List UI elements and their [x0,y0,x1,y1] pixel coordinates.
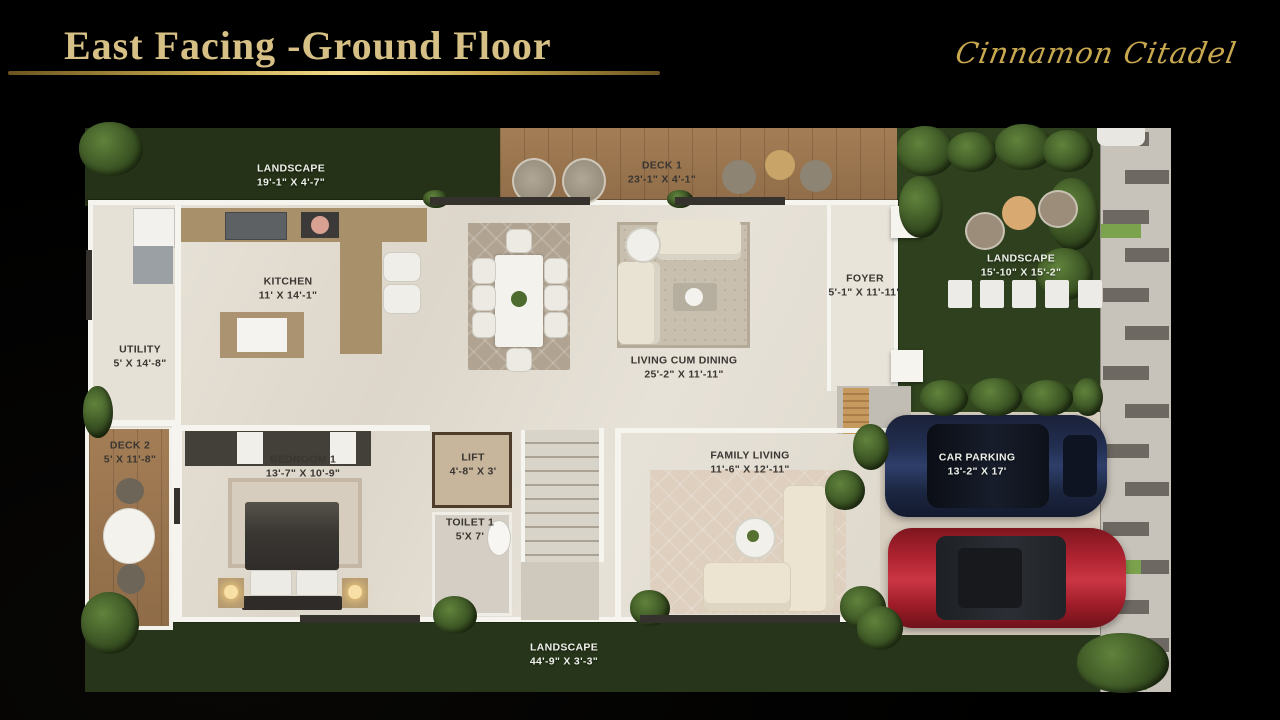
garden-chair-2 [1038,190,1078,228]
floor-plan: LANDSCAPE 19'-1" X 4'-7" DECK 1 23'-1" X… [85,128,1170,692]
room-dims: 11' X 14'-1" [259,289,318,303]
bedside-lamp-1 [224,585,238,599]
label-car-parking: CAR PARKING 13'-2" X 17' [939,451,1016,478]
walkway-white-cap [1097,128,1145,146]
car-navy-rear-glass [1063,435,1097,497]
car-red-sunroof [958,548,1022,608]
bush [947,132,997,172]
room-dims: 5' X 11'-8" [104,453,156,467]
label-family-living: FAMILY LIVING 11'-6" X 12'-11" [710,449,789,476]
dining-chair [544,285,568,311]
breakfast-chair-2 [383,284,421,314]
corner-bush [1077,633,1169,693]
stairs-right-wall [599,428,604,562]
garden-table [1002,196,1036,230]
living-sofa-top [657,220,741,260]
bed-headboard [242,596,342,610]
label-foyer: FOYER 5'-1" X 11'-11" [828,272,901,299]
bush [1043,130,1093,172]
dining-chair [472,258,496,284]
stepping-stone [1012,280,1036,308]
bed-duvet [245,502,339,570]
kitchen-sink [225,212,287,240]
room-name: LANDSCAPE [981,252,1061,266]
room-dims: 13'-2" X 17' [939,465,1016,479]
deck1-zone [500,128,900,206]
hedge-bush [1073,378,1103,416]
deck2-stool-2 [117,564,145,594]
room-name: TOILET 1 [446,516,494,530]
stepping-stone [1078,280,1102,308]
page-title: East Facing -Ground Floor [64,22,552,69]
deck2-plant [81,592,139,654]
bedroom-top-wall [180,425,430,431]
room-dims: 5' X 14'-8" [114,357,167,371]
room-name: KITCHEN [259,275,318,289]
label-kitchen: KITCHEN 11' X 14'-1" [259,275,318,302]
car-red [888,528,1126,628]
room-dims: 13'-7" X 10'-9" [266,467,340,481]
label-bedroom1: BEDROOM 1 13'-7" X 10'-9" [266,453,340,480]
bush [899,176,943,238]
deck1-pouf-2 [765,150,795,180]
walkway-grass-bar-1 [1101,224,1141,238]
dining-chair [472,285,496,311]
wardrobe-unit-white-1 [237,432,263,464]
dining-chair [472,312,496,338]
dining-chair [506,229,532,253]
deck2-stool-1 [116,478,144,504]
label-landscape-right: LANDSCAPE 15'-10" X 15'-2" [981,252,1061,279]
label-landscape-top: LANDSCAPE 19'-1" X 4'-7" [257,162,325,189]
room-dims: 5'-1" X 11'-11" [828,286,901,300]
room-name: LANDSCAPE [530,641,598,655]
dining-chair [506,348,532,372]
bedside-lamp-2 [348,585,362,599]
kitchen-island-top [237,318,287,352]
bed-pillow-2 [296,570,338,596]
family-table-plant [747,530,759,542]
bush [79,122,143,176]
slide: East Facing -Ground Floor Cinnamon Citad… [0,0,1280,720]
living-side-table [625,227,661,263]
room-dims: 25'-2" X 11'-11" [631,368,738,382]
stepping-stone [948,280,972,308]
room-dims: 15'-10" X 15'-2" [981,266,1061,280]
hedge-bush [970,378,1022,416]
label-lift: LIFT 4'-8" X 3' [450,451,497,478]
deck1-pouf-1 [722,160,756,194]
walkway-bars-right [1125,170,1169,688]
utility-plant [83,386,113,438]
bedroom-window-left [174,488,180,524]
living-sofa-left [618,262,660,344]
stepping-stone [980,280,1004,308]
room-name: DECK 1 [628,159,696,173]
room-dims: 44'-9" X 3'-3" [530,655,598,669]
grass-plant [857,606,903,650]
window-left [86,250,92,320]
bedroom-plant [433,596,477,634]
family-sofa-bottom [703,562,791,612]
hedge-bush [1023,380,1073,416]
label-utility: UTILITY 5' X 14'-8" [114,343,167,370]
room-dims: 11'-6" X 12'-11" [710,463,789,477]
utility-kitchen-wall [175,205,181,431]
hedge-bush [920,380,968,416]
room-name: FAMILY LIVING [710,449,789,463]
deck1-pouf-3 [800,160,832,192]
room-dims: 19'-1" X 4'-7" [257,176,325,190]
title-underline [8,71,660,75]
room-name: LANDSCAPE [257,162,325,176]
entry-plant [853,424,889,470]
room-name: DECK 2 [104,439,156,453]
dining-chair [544,312,568,338]
room-dims: 23'-1" X 4'-1" [628,173,696,187]
deck2-table [103,508,155,564]
window-bottom-2 [640,615,840,623]
window-top-2 [675,197,785,205]
brand-logo: Cinnamon Citadel [953,36,1239,70]
breakfast-chair-1 [383,252,421,282]
family-left-wall [615,428,621,622]
label-toilet1: TOILET 1 5'X 7' [446,516,494,543]
room-name: UTILITY [114,343,167,357]
staircase [521,430,599,562]
label-living-dining: LIVING CUM DINING 25'-2" X 11'-11" [631,354,738,381]
room-name: LIFT [450,451,497,465]
room-name: CAR PARKING [939,451,1016,465]
label-landscape-bottom: LANDSCAPE 44'-9" X 3'-3" [530,641,598,668]
cooking-pot [311,216,329,234]
washing-machine [133,208,175,248]
room-dims: 5'X 7' [446,530,494,544]
stepping-stone [1045,280,1069,308]
family-plant-top [825,470,865,510]
room-name: BEDROOM 1 [266,453,340,467]
bed-pillow-1 [250,570,292,596]
room-dims: 4'-8" X 3' [450,465,497,479]
kitchen-peninsula [340,208,382,354]
stair-landing [521,562,599,620]
table-plant [511,291,527,307]
dining-chair [544,258,568,284]
room-name: LIVING CUM DINING [631,354,738,368]
window-top-1 [430,197,590,205]
entry-pillar-bottom [891,350,923,382]
label-deck1: DECK 1 23'-1" X 4'-1" [628,159,696,186]
utility-cabinet [133,246,173,284]
garden-chair-1 [965,212,1005,250]
label-deck2: DECK 2 5' X 11'-8" [104,439,156,466]
coffee-table-tray [685,288,703,306]
room-name: FOYER [828,272,901,286]
window-bottom-1 [300,615,420,623]
